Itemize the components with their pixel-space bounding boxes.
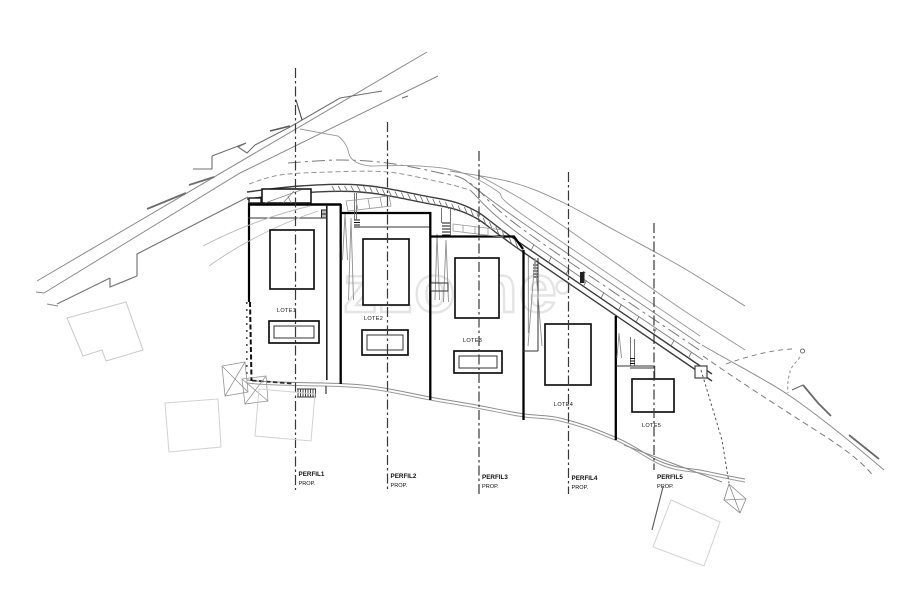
svg-text:PERFIL5: PERFIL5 xyxy=(657,474,683,481)
svg-text:PERFIL3: PERFIL3 xyxy=(482,474,508,481)
svg-text:PROP.: PROP. xyxy=(391,483,408,489)
svg-text:LOTE4: LOTE4 xyxy=(554,402,573,408)
svg-text:PERFIL2: PERFIL2 xyxy=(391,473,417,480)
svg-text:PROP.: PROP. xyxy=(482,484,499,490)
svg-text:PERFIL4: PERFIL4 xyxy=(572,475,598,482)
svg-text:PROP.: PROP. xyxy=(299,481,316,487)
svg-text:LOTE2: LOTE2 xyxy=(364,316,383,322)
svg-text:PERFIL1: PERFIL1 xyxy=(299,471,325,478)
svg-text:LOTE5: LOTE5 xyxy=(642,423,661,429)
svg-text:LOTE1: LOTE1 xyxy=(277,308,296,314)
svg-text:PROP.: PROP. xyxy=(572,485,589,491)
svg-text:PROP.: PROP. xyxy=(657,484,674,490)
